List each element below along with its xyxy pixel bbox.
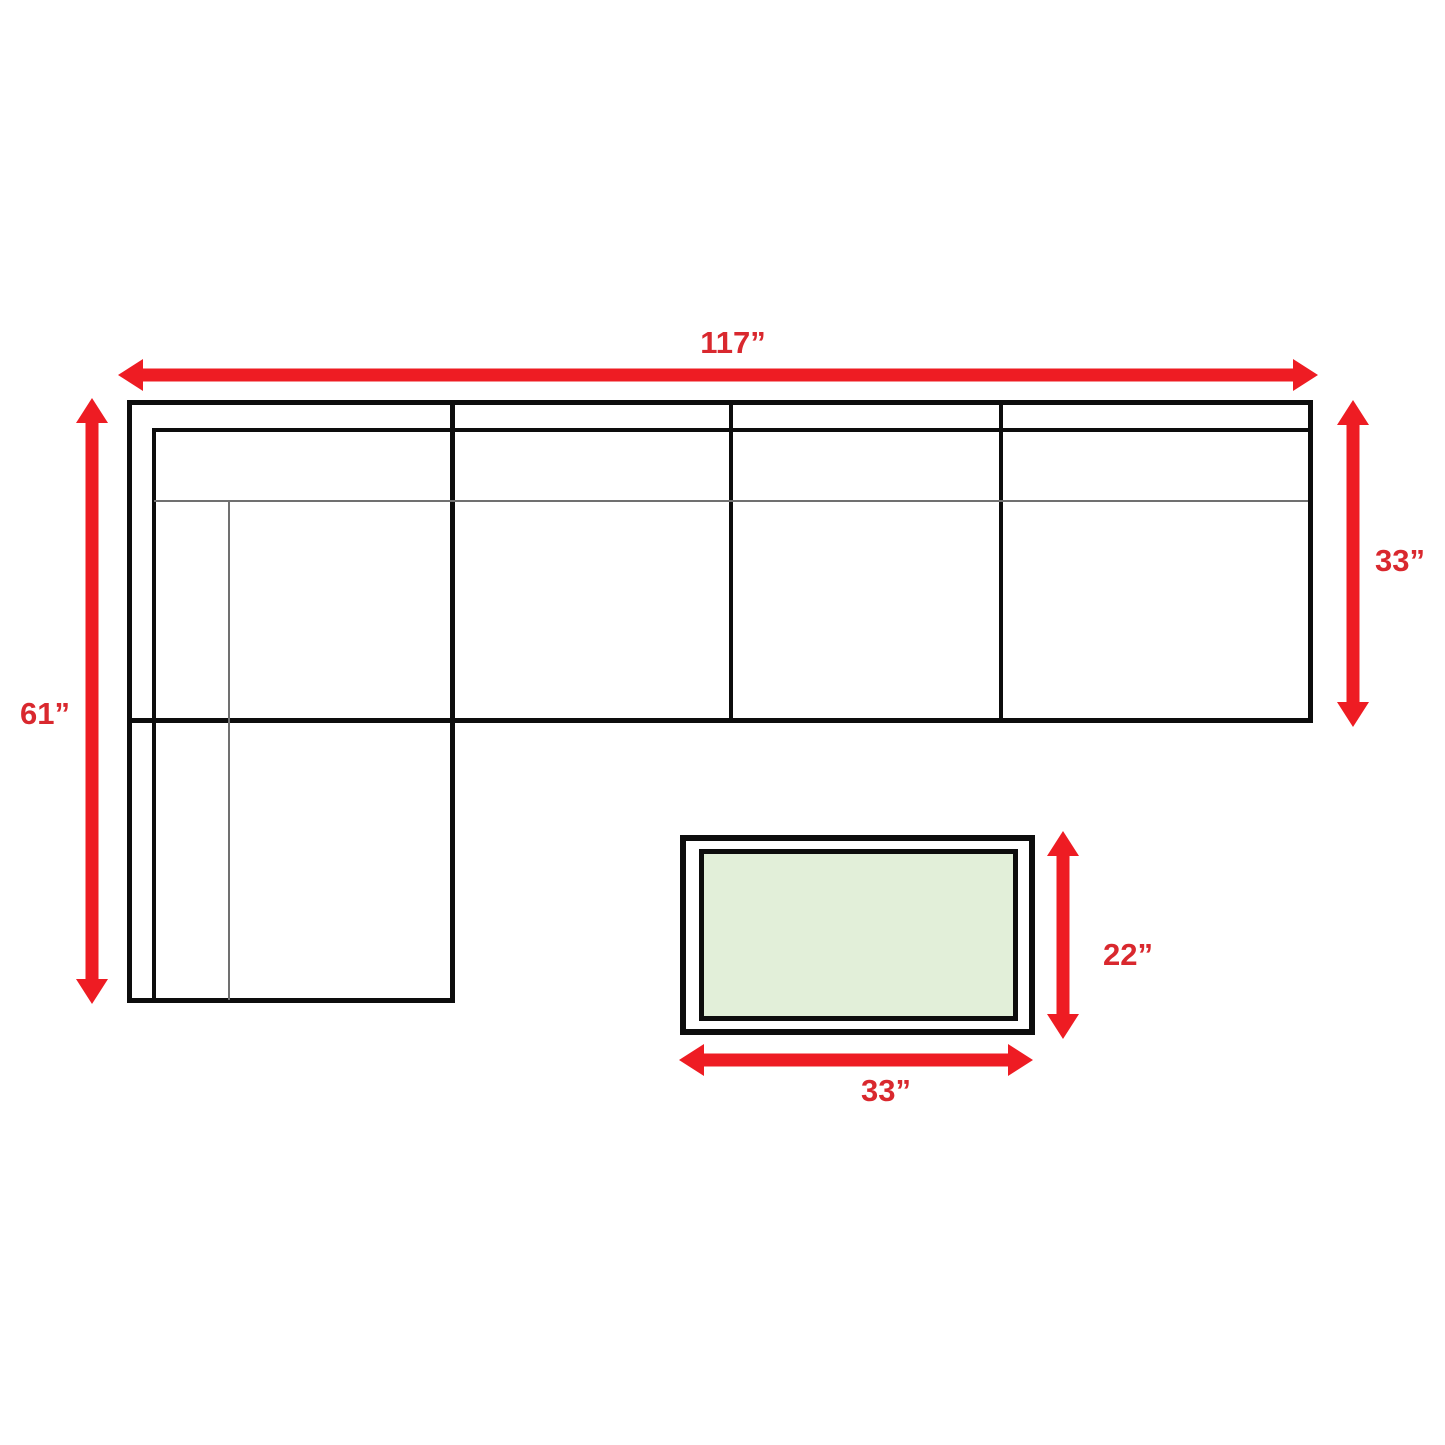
sofa-seat-front-edge — [127, 718, 1313, 723]
arrow-bar — [138, 369, 1298, 382]
table-width-label: 33” — [838, 1075, 934, 1106]
sofa-width-arrow — [118, 358, 1318, 392]
arrowhead-down-icon — [76, 979, 108, 1004]
arrowhead-down-icon — [1047, 1014, 1079, 1039]
sofa-chaise-cushion-seam — [228, 500, 230, 1000]
table-width-arrow — [679, 1043, 1033, 1077]
sectional-sofa-dimension-diagram: 117” 61” 33” 22” 33” — [0, 0, 1445, 1445]
sofa-cushion-front-seam — [154, 500, 1308, 502]
coffee-table-top — [699, 849, 1018, 1021]
arrowhead-right-icon — [1293, 359, 1318, 391]
sofa-depth-label: 33” — [1352, 545, 1445, 576]
table-height-label: 22” — [1080, 939, 1176, 970]
sofa-right-edge — [1308, 400, 1313, 723]
sofa-left-armrest-inner-line — [152, 428, 156, 1000]
arrow-bar — [1057, 851, 1070, 1019]
arrowhead-right-icon — [1008, 1044, 1033, 1076]
arrowhead-down-icon — [1337, 702, 1369, 727]
sofa-height-label: 61” — [5, 698, 85, 729]
sofa-chaise-right-edge-divider — [450, 400, 455, 1003]
arrow-bar — [699, 1054, 1013, 1067]
sofa-chaise-bottom-edge — [127, 998, 455, 1003]
arrow-bar — [86, 418, 99, 984]
sofa-seat-divider-2 — [729, 400, 733, 722]
table-height-arrow — [1046, 831, 1080, 1039]
sofa-top-edge — [127, 400, 1313, 405]
sofa-left-edge — [127, 400, 132, 1003]
sofa-width-label: 117” — [685, 327, 781, 358]
sofa-seat-divider-3 — [999, 400, 1003, 722]
